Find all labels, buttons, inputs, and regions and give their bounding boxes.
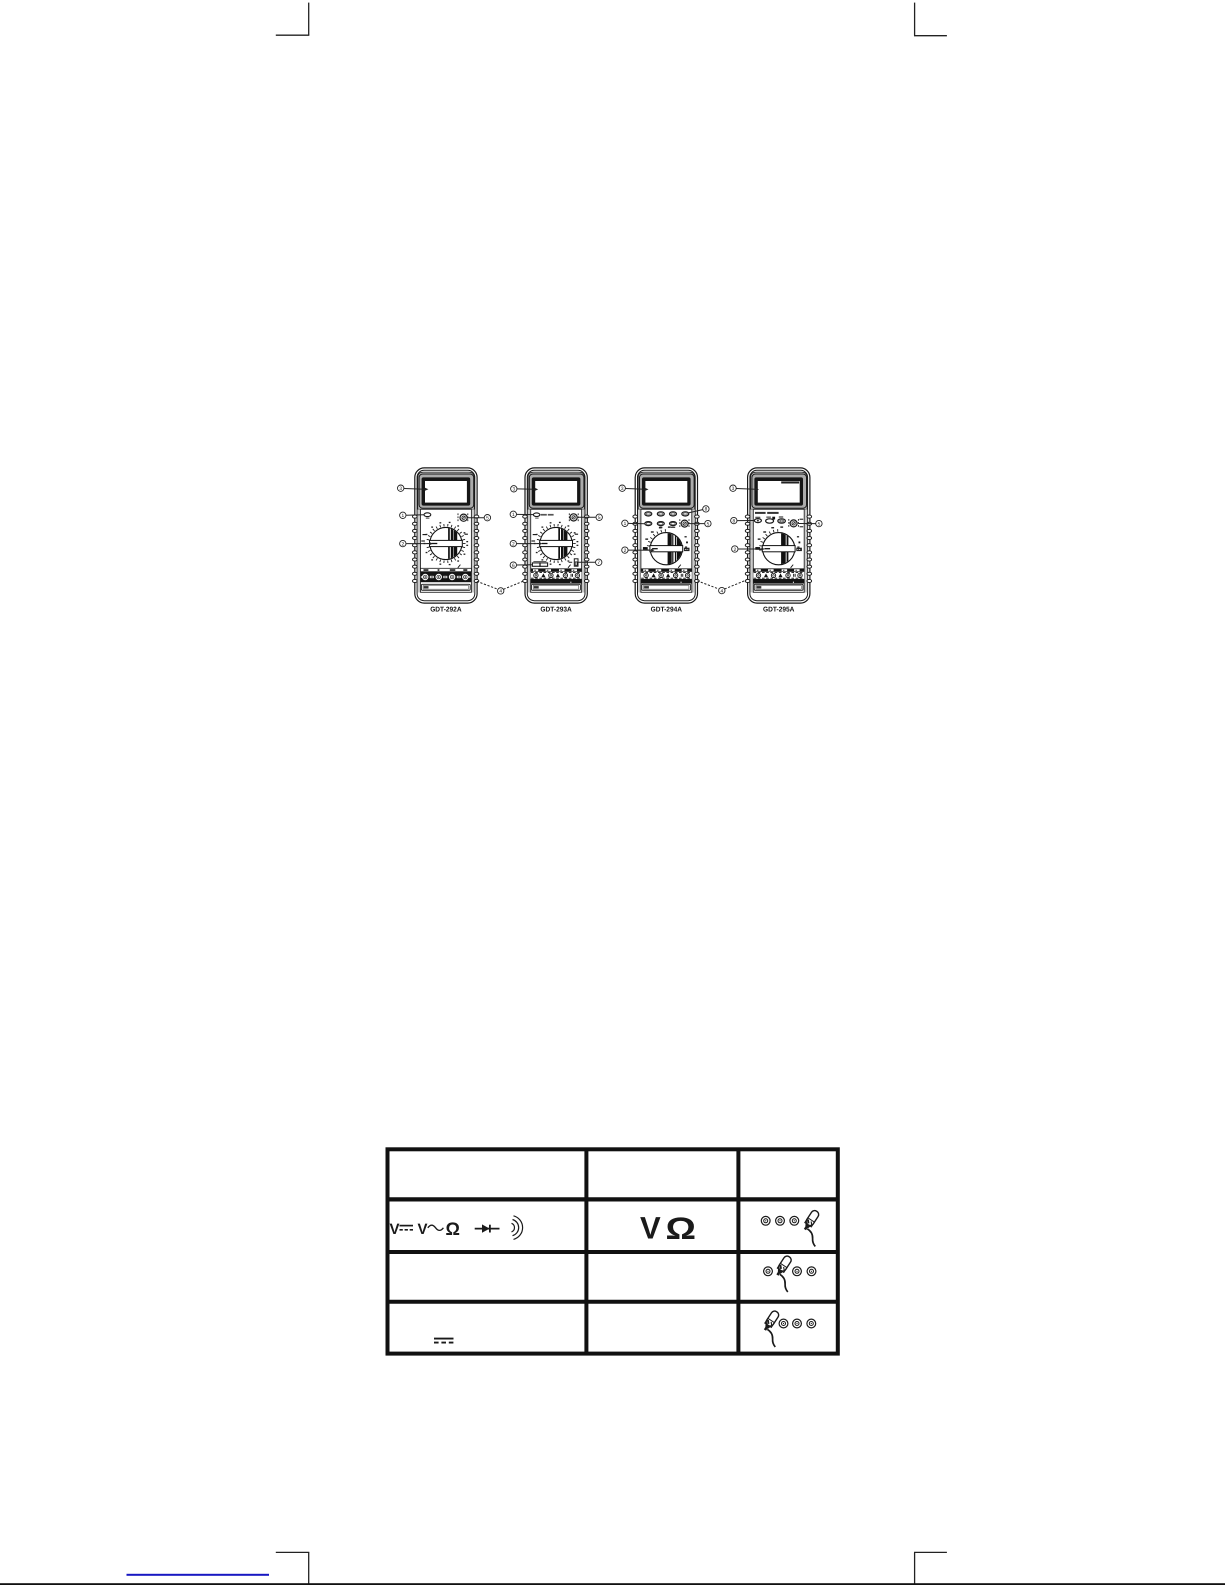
svg-text:Ω: Ω xyxy=(446,1219,460,1239)
svg-text:GDT-294A: GDT-294A xyxy=(651,607,682,614)
svg-text:V: V xyxy=(640,1210,661,1245)
svg-text:4: 4 xyxy=(499,589,502,595)
svg-text:2: 2 xyxy=(624,548,627,554)
svg-text:Ω: Ω xyxy=(666,1211,697,1246)
svg-text:3: 3 xyxy=(732,486,735,492)
svg-text:1: 1 xyxy=(512,512,515,518)
svg-text:1: 1 xyxy=(624,521,627,527)
svg-text:5: 5 xyxy=(486,515,489,521)
svg-text:6: 6 xyxy=(512,563,515,569)
svg-text:5: 5 xyxy=(598,515,601,521)
svg-text:7: 7 xyxy=(597,560,600,566)
svg-text:8: 8 xyxy=(732,518,735,524)
svg-text:1: 1 xyxy=(401,513,404,519)
svg-text:4: 4 xyxy=(720,588,723,594)
svg-text:5: 5 xyxy=(818,521,821,527)
svg-text:8: 8 xyxy=(705,507,708,513)
svg-text:3: 3 xyxy=(512,487,515,493)
svg-text:GDT-292A: GDT-292A xyxy=(430,607,461,614)
svg-text:3: 3 xyxy=(399,486,402,492)
svg-text:3: 3 xyxy=(621,486,624,492)
svg-text:2: 2 xyxy=(512,541,515,547)
svg-text:GDT-295A: GDT-295A xyxy=(763,607,794,614)
svg-text:5: 5 xyxy=(707,521,710,527)
svg-text:V: V xyxy=(418,1221,428,1238)
svg-text:GDT-293A: GDT-293A xyxy=(540,607,571,614)
svg-text:2: 2 xyxy=(401,541,404,547)
svg-text:V: V xyxy=(390,1221,400,1238)
svg-text:2: 2 xyxy=(733,547,736,553)
